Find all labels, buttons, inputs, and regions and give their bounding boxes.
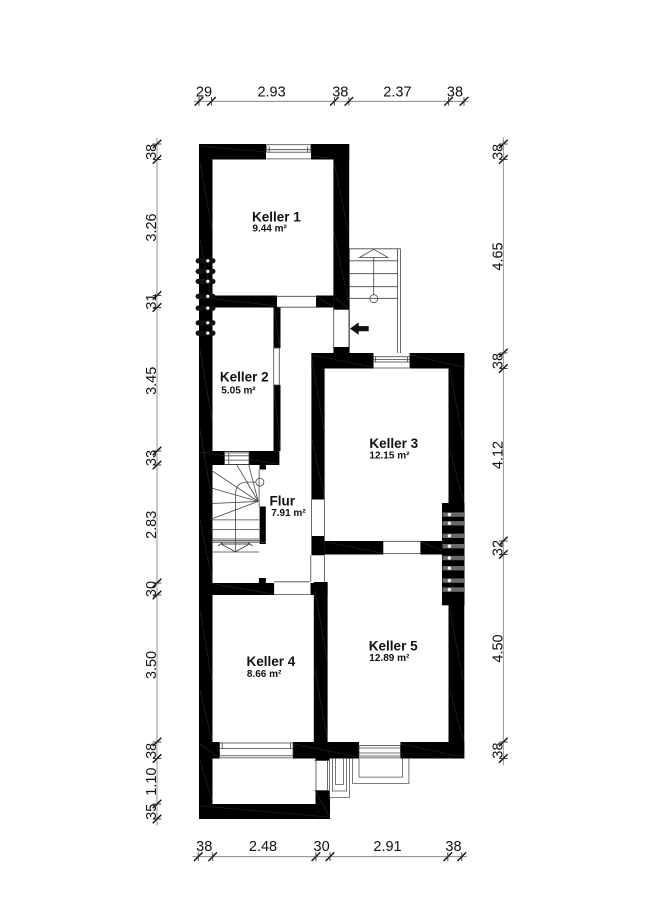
svg-text:Keller 2: Keller 2 [220, 370, 269, 385]
svg-text:8.66 m²: 8.66 m² [247, 669, 282, 680]
svg-text:12.89 m²: 12.89 m² [369, 653, 410, 664]
svg-text:2.93: 2.93 [257, 84, 285, 100]
svg-text:Keller 3: Keller 3 [369, 436, 418, 451]
svg-text:30: 30 [144, 581, 160, 597]
svg-text:7.91 m²: 7.91 m² [271, 508, 306, 519]
svg-text:4.50: 4.50 [491, 634, 507, 662]
svg-text:5.05 m²: 5.05 m² [221, 386, 256, 397]
svg-text:38: 38 [491, 353, 507, 369]
svg-text:35: 35 [144, 804, 160, 820]
svg-text:38: 38 [491, 742, 507, 758]
svg-text:38: 38 [196, 839, 212, 855]
svg-text:3.50: 3.50 [144, 651, 160, 679]
svg-text:2.37: 2.37 [383, 84, 411, 100]
svg-text:12.15 m²: 12.15 m² [369, 451, 410, 462]
svg-text:3.26: 3.26 [144, 213, 160, 241]
svg-text:31: 31 [144, 293, 160, 309]
svg-text:30: 30 [314, 839, 330, 855]
svg-text:2.91: 2.91 [373, 839, 401, 855]
svg-text:38: 38 [332, 84, 348, 100]
svg-text:38: 38 [491, 144, 507, 160]
svg-text:38: 38 [447, 84, 463, 100]
svg-text:38: 38 [144, 144, 160, 160]
svg-text:4.12: 4.12 [491, 441, 507, 469]
svg-text:29: 29 [196, 84, 212, 100]
svg-text:3.45: 3.45 [144, 367, 160, 395]
svg-text:32: 32 [491, 540, 507, 556]
svg-text:2.48: 2.48 [249, 839, 277, 855]
svg-text:9.44 m²: 9.44 m² [252, 224, 287, 235]
svg-text:1.10: 1.10 [144, 767, 160, 795]
svg-text:2.83: 2.83 [144, 511, 160, 539]
svg-text:38: 38 [445, 839, 461, 855]
svg-text:Keller 5: Keller 5 [369, 639, 418, 654]
svg-text:33: 33 [144, 450, 160, 466]
svg-text:38: 38 [144, 743, 160, 759]
svg-text:Keller 1: Keller 1 [252, 210, 301, 225]
svg-text:4.65: 4.65 [491, 242, 507, 270]
svg-text:Flur: Flur [270, 494, 296, 509]
svg-text:Keller 4: Keller 4 [247, 654, 296, 669]
